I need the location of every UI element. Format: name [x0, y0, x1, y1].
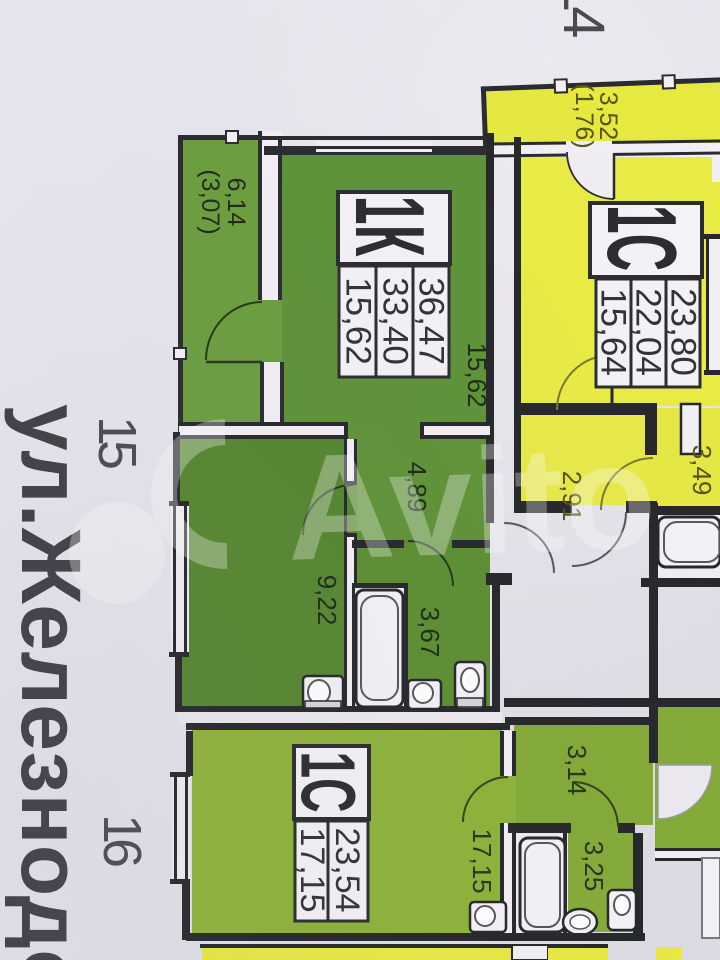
svg-text:36,47: 36,47 [412, 277, 451, 365]
svg-text:17,15: 17,15 [467, 828, 497, 893]
svg-text:1К: 1К [335, 196, 445, 257]
svg-text:(1,76): (1,76) [570, 83, 598, 148]
svg-text:Avito: Avito [284, 411, 659, 592]
svg-text:3,67: 3,67 [415, 607, 445, 658]
svg-text:(3,07): (3,07) [196, 169, 224, 234]
svg-text:23,80: 23,80 [664, 288, 703, 376]
svg-text:23,54: 23,54 [328, 827, 366, 912]
svg-text:3,25: 3,25 [579, 841, 609, 892]
svg-text:15,62: 15,62 [339, 277, 378, 365]
svg-text:3,14: 3,14 [562, 745, 592, 796]
svg-text:15,64: 15,64 [594, 288, 633, 376]
svg-text:22,04: 22,04 [629, 288, 668, 376]
svg-text:16: 16 [92, 814, 152, 866]
svg-text:3,49: 3,49 [687, 445, 717, 496]
svg-text:15,62: 15,62 [462, 342, 492, 407]
svg-text:ул.Железнодорож: ул.Железнодорож [4, 404, 98, 960]
svg-text:17,15: 17,15 [293, 827, 331, 912]
svg-text:6,14: 6,14 [222, 178, 250, 227]
svg-text:33,40: 33,40 [376, 277, 415, 365]
svg-text:1С: 1С [285, 751, 371, 812]
svg-text:15: 15 [87, 416, 147, 468]
svg-text:14: 14 [551, 0, 616, 37]
svg-text:1С: 1С [587, 205, 697, 271]
